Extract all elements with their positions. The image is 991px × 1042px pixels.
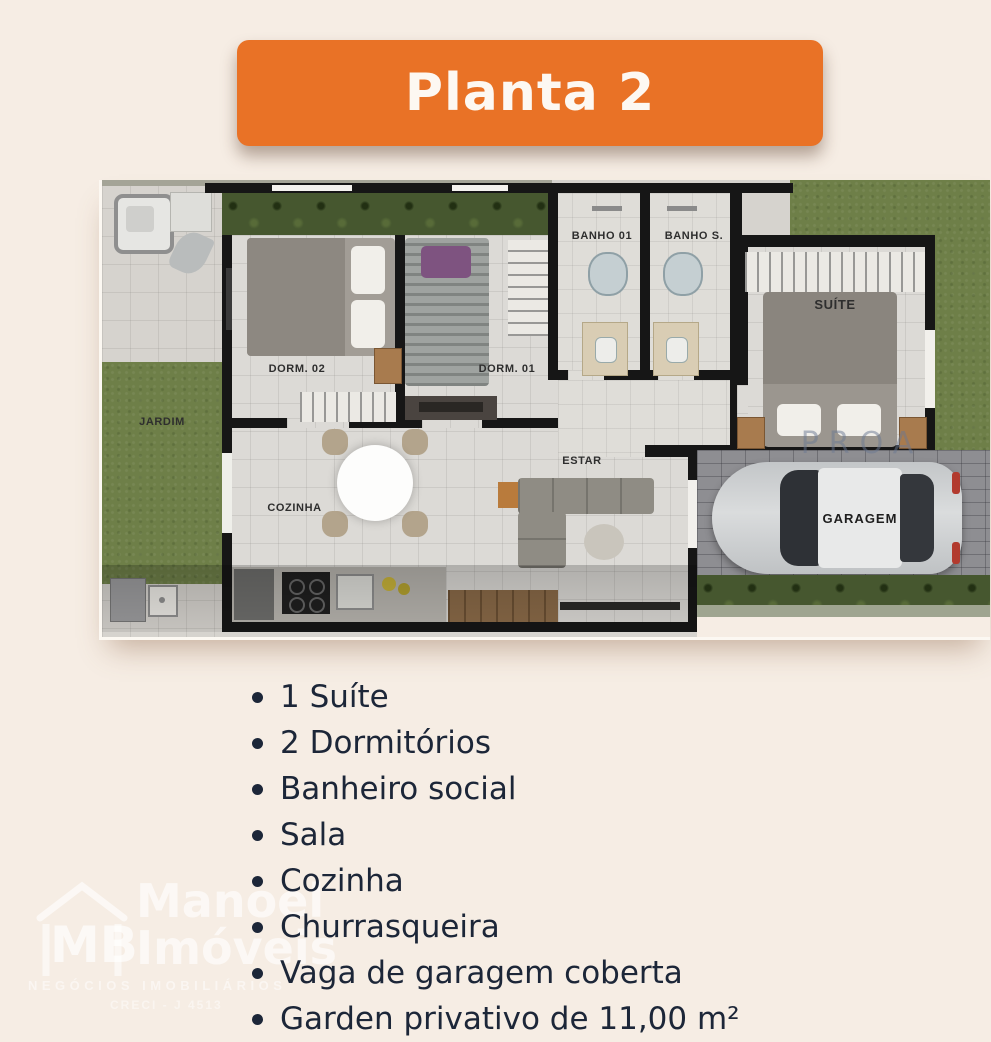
room-label-banho-s: BANHO S.: [650, 230, 738, 242]
wall-bath-left: [548, 193, 558, 380]
plan-bottom-gap: [697, 617, 990, 637]
room-label-jardim: JARDIM: [102, 416, 222, 428]
feature-item: Sala: [237, 812, 877, 858]
feature-item: Garden privativo de 11,00 m²: [237, 996, 877, 1042]
window-kitchen: [222, 453, 232, 533]
feature-item: Churrasqueira: [237, 904, 877, 950]
room-label-cozinha: COZINHA: [242, 502, 347, 514]
room-label-dorm02: DORM. 02: [242, 363, 352, 375]
bullet-icon: [252, 876, 263, 887]
feature-item: 1 Suíte: [237, 674, 877, 720]
water-heater: [170, 192, 212, 232]
room-label-garagem: GARAGEM: [823, 511, 898, 526]
car-taillight: [952, 472, 960, 494]
proa-watermark: PROA: [742, 426, 982, 461]
closet-dorm02: [300, 392, 396, 422]
towel-bar: [667, 206, 697, 211]
bullet-icon: [252, 692, 263, 703]
shadow-overlay: [102, 565, 700, 632]
dining-table: [337, 445, 413, 521]
wall-bath-divider: [640, 193, 650, 380]
bed-dorm02: [247, 238, 395, 356]
floor-plan: JARDIM: [99, 180, 990, 640]
side-table: [498, 482, 518, 508]
mb-house-logo-icon: MB: [26, 874, 138, 986]
bullet-icon: [252, 922, 263, 933]
feature-item: Banheiro social: [237, 766, 877, 812]
bullet-icon: [252, 968, 263, 979]
chair: [322, 511, 348, 537]
room-label-banho01: BANHO 01: [557, 230, 647, 242]
tv-panel-dorm02: [226, 268, 232, 330]
plan-title: Planta 2: [405, 63, 655, 123]
vanity-banho-s: [653, 322, 699, 376]
window-dorm01: [452, 185, 508, 191]
chair: [322, 429, 348, 455]
pillow: [351, 300, 385, 348]
logo-initials: MB: [50, 916, 138, 974]
chair: [402, 511, 428, 537]
car-windshield: [780, 470, 822, 566]
curb-strip: [697, 605, 990, 617]
hedge-garage: [697, 575, 990, 605]
bullet-icon: [252, 830, 263, 841]
lawn-right: [935, 235, 990, 457]
pouf: [584, 524, 624, 560]
desk-dorm01: [405, 396, 497, 420]
towel-bar: [592, 206, 622, 211]
bullet-icon: [252, 738, 263, 749]
bullet-icon: [252, 784, 263, 795]
car-roof: GARAGEM: [818, 468, 902, 568]
car: GARAGEM: [712, 462, 962, 574]
closet-suite: [745, 252, 925, 292]
toilet-banho-s: [663, 252, 703, 296]
window-suite: [925, 330, 935, 408]
feature-list: 1 Suíte 2 Dormitórios Banheiro social Sa…: [237, 674, 877, 1042]
hedge-top: [222, 193, 553, 235]
pillow: [351, 246, 385, 294]
chair: [402, 429, 428, 455]
lawn-top-right: [790, 180, 990, 240]
nightstand-dorm02: [374, 348, 402, 384]
car-taillight: [952, 542, 960, 564]
bullet-icon: [252, 1014, 263, 1025]
feature-item: Cozinha: [237, 858, 877, 904]
garden-grass: [102, 362, 222, 584]
sofa-chaise: [518, 512, 566, 568]
vanity-banho01: [582, 322, 628, 376]
sofa: [518, 478, 654, 514]
car-rear-window: [900, 474, 934, 562]
bed-suite: [763, 292, 897, 447]
room-label-dorm01: DORM. 01: [452, 363, 562, 375]
wall-suite-top: [737, 235, 935, 247]
feature-item: Vaga de garagem coberta: [237, 950, 877, 996]
wall-dorm-divider: [395, 235, 405, 428]
closet-dorm01: [508, 240, 548, 336]
plan-title-banner: Planta 2: [237, 40, 823, 146]
pillow: [421, 246, 471, 278]
toilet-banho01: [588, 252, 628, 296]
laundry-tank: [114, 194, 174, 254]
window-dorm02: [272, 185, 352, 191]
room-label-suite: SUÍTE: [762, 297, 908, 312]
room-label-estar: ESTAR: [537, 455, 627, 467]
feature-item: 2 Dormitórios: [237, 720, 877, 766]
